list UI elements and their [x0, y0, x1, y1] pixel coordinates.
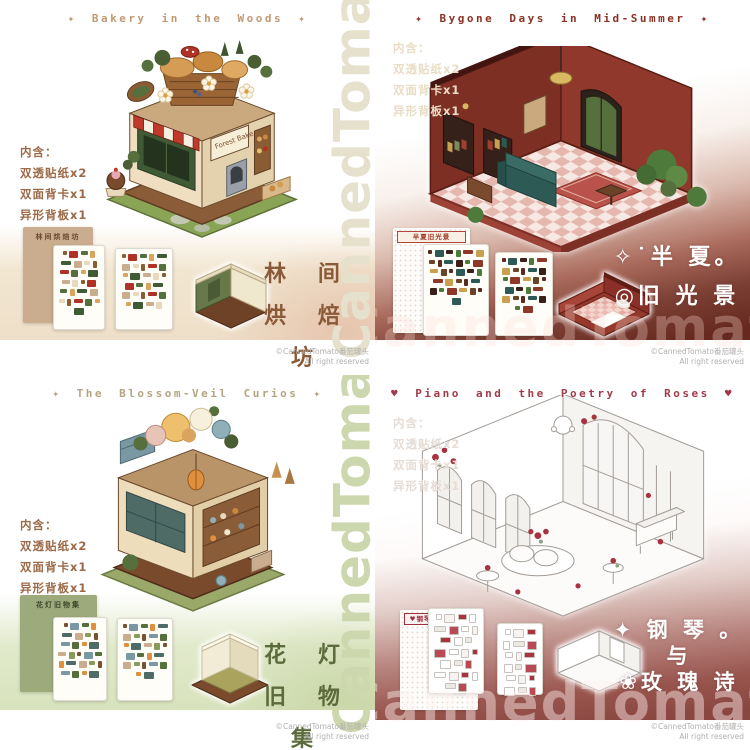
panel-bakery-in-the-woods: CannedTomato ✦ Bakery in the Woods ✦ 内含：… [0, 0, 375, 375]
sticker-item [82, 623, 89, 627]
chinese-title-line: 花 灯 [249, 635, 367, 677]
sticker-item [60, 270, 69, 274]
backing-card-title: 半夏旧光景 [397, 231, 466, 243]
contents-item: 双透贴纸x2 [393, 434, 460, 455]
contents-item: 双面背卡x1 [393, 455, 460, 476]
sticker-item [95, 652, 102, 656]
sticker-item [467, 269, 474, 273]
sticker-item [503, 277, 508, 281]
sticker-item [158, 624, 168, 628]
sticker-item [94, 633, 98, 640]
sticker-item [133, 264, 139, 268]
contents-item: 异形背板x1 [393, 476, 460, 497]
sticker-item [156, 302, 162, 309]
sticker-item [449, 269, 453, 273]
sticker-item [61, 642, 70, 646]
sticker-item [440, 637, 451, 643]
contents-heading: 内含： [393, 38, 460, 59]
sticker-item [122, 254, 126, 258]
sticker-sheet [115, 248, 173, 330]
sticker-item [520, 258, 527, 262]
sticker-item [82, 671, 87, 675]
sticker-item [160, 634, 167, 641]
sticker-item [440, 660, 451, 669]
contents-list: 内含： 双透贴纸x2 双面背卡x1 异形背板x1 [20, 142, 87, 226]
contents-heading: 内含： [20, 515, 87, 536]
sticker-item [125, 283, 134, 290]
sticker-item [74, 308, 84, 315]
sticker-item [122, 292, 130, 299]
sticker-item [150, 624, 155, 631]
sticker-item [430, 288, 437, 295]
poster-grid: CannedTomato ✦ Bakery in the Woods ✦ 内含：… [0, 0, 750, 750]
sticker-item [122, 264, 130, 271]
sticker-item [436, 614, 442, 620]
sticker-item [72, 642, 79, 649]
sticker-item [88, 270, 98, 277]
sticker-item [64, 623, 68, 627]
sticker-item [67, 299, 71, 306]
contents-item: 双透贴纸x2 [20, 163, 87, 184]
sticker-item [123, 634, 131, 641]
sticker-item [456, 260, 463, 267]
sticker-item [529, 258, 534, 265]
contents-item: 异形背板x1 [20, 578, 87, 599]
sticker-item [61, 261, 71, 265]
sticker-item [133, 292, 139, 296]
sticker-item [146, 302, 154, 306]
panel-bygone-days-in-mid-summer: ✦ Bygone Days in Mid-Summer ✦ 内含： 双透贴纸x2… [375, 0, 750, 375]
sticker-item [477, 269, 482, 276]
sticker-item [505, 629, 511, 635]
sticker-item [59, 661, 64, 668]
sticker-item [435, 250, 444, 257]
chinese-title-line: 林 间 [249, 254, 367, 296]
chinese-title-line: ✦ 钢 琴 。 [608, 617, 750, 643]
contents-list: 内含： 双透贴纸x2 双面背卡x1 异形背板x1 [393, 413, 460, 497]
sticker-item [147, 653, 152, 660]
copyright-line: All right reserved [650, 732, 744, 742]
sticker-item [148, 292, 157, 296]
sticker-item [69, 251, 78, 258]
sticker-item [90, 251, 95, 258]
sticker-item [70, 623, 79, 630]
copyright: ©CannedTomato番茄罐头 All right reserved [650, 347, 744, 367]
sticker-item [77, 652, 81, 656]
sticker-item [472, 626, 478, 635]
sticker-item [456, 250, 461, 257]
sticker-item [75, 633, 83, 640]
sticker-item [433, 279, 443, 283]
copyright: ©CannedTomato番茄罐头 All right reserved [650, 722, 744, 742]
sticker-item [513, 629, 524, 638]
sticker-item [154, 643, 160, 650]
sticker-item [461, 649, 469, 658]
sticker-item [143, 273, 151, 277]
sticker-item [505, 287, 514, 294]
sticker-item [465, 637, 472, 643]
copyright: ©CannedTomato番茄罐头 All right reserved [275, 347, 369, 367]
sticker-item [95, 299, 100, 303]
sticker-item [62, 280, 70, 284]
sticker-item [472, 649, 478, 655]
sticker-item [81, 270, 86, 274]
hanging-lamp [550, 72, 572, 84]
sticker-item [148, 264, 157, 268]
sticker-item [136, 283, 143, 287]
sticker-item [137, 653, 144, 657]
sticker-item [141, 624, 148, 628]
sticker-item [159, 292, 166, 299]
contents-list: 内含： 双透贴纸x2 双面背卡x1 异形背板x1 [20, 515, 87, 599]
sticker-item [510, 277, 520, 284]
sticker-item [516, 287, 523, 291]
sticker-item [142, 634, 146, 641]
sticker-item [58, 652, 66, 656]
sticker-item [77, 289, 87, 293]
sticker-item [524, 652, 535, 658]
copyright-line: All right reserved [650, 357, 744, 367]
sticker-item [464, 279, 468, 286]
sticker-item [90, 289, 98, 296]
sticker-item [454, 660, 463, 666]
sticker-item [447, 288, 457, 295]
sticker-item [157, 254, 167, 258]
sticker-item [84, 652, 93, 659]
sticker-item [439, 288, 444, 292]
sticker-item [141, 264, 145, 271]
sticker-sheet [53, 617, 107, 701]
contents-item: 双面背卡x1 [20, 557, 87, 578]
sticker-item [528, 268, 537, 272]
sticker-item [98, 661, 102, 668]
sticker-item [434, 649, 446, 658]
sticker-item [163, 643, 167, 647]
panel-title-english: ✦ Bygone Days in Mid-Summer ✦ [375, 12, 750, 25]
sticker-item [513, 268, 519, 272]
sticker-item [123, 662, 131, 669]
bakery-illustration: Forest Bake [78, 40, 326, 238]
sticker-item [537, 258, 547, 262]
copyright-line: ©CannedTomato番茄罐头 [650, 347, 744, 357]
sticker-item [465, 660, 472, 669]
sticker-item [123, 624, 127, 628]
sticker-item [79, 661, 87, 668]
sticker-item [465, 260, 470, 264]
sticker-item [428, 250, 432, 254]
sticker-item [123, 273, 128, 277]
sticker-item [144, 672, 154, 679]
sticker-item [81, 280, 85, 284]
sticker-item [72, 671, 79, 678]
panel-title-english: ✦ The Blossom-Veil Curios ✦ [0, 387, 375, 400]
sticker-item [533, 277, 539, 284]
sticker-item [72, 280, 78, 287]
contents-heading: 内含： [393, 413, 460, 434]
sticker-item [140, 254, 147, 258]
copyright-line: ©CannedTomato番茄罐头 [650, 722, 744, 732]
sticker-item [134, 662, 140, 666]
sticker-item [516, 652, 522, 661]
panel-title-english: ✦ Bakery in the Woods ✦ [0, 12, 375, 25]
copyright-line: ©CannedTomato番茄罐头 [275, 347, 369, 357]
sticker-item [521, 268, 525, 275]
curios-shop-illustration [70, 401, 322, 613]
sticker-item [134, 634, 140, 638]
sticker-item [438, 260, 442, 267]
sticker-item [429, 260, 435, 264]
sticker-item [502, 258, 506, 262]
sticker-item [454, 637, 463, 646]
sticker-item [70, 289, 75, 296]
copyright-line: ©CannedTomato番茄罐头 [275, 722, 369, 732]
chinese-title-line: ✧˙半 夏。 [606, 238, 748, 277]
contents-item: 双透贴纸x2 [20, 536, 87, 557]
sticker-item [505, 652, 513, 658]
sticker-item [126, 653, 135, 660]
copyright-line: All right reserved [275, 732, 369, 742]
sticker-item [476, 250, 484, 257]
sticker-item [471, 279, 480, 283]
sticker-item [523, 277, 531, 281]
sticker-item [515, 664, 522, 670]
sticker-item [85, 633, 91, 637]
sticker-item [470, 288, 476, 295]
sticker-item [130, 273, 140, 280]
sticker-item [449, 626, 459, 635]
sticker-item [89, 671, 99, 678]
sticker-item [456, 279, 462, 283]
sticker-item [91, 623, 96, 630]
sticker-item [133, 302, 143, 309]
sticker-item [503, 641, 510, 650]
sticker-item [128, 254, 137, 261]
sticker-item [84, 261, 90, 265]
sticker-item [149, 662, 158, 666]
sticker-item [131, 643, 141, 650]
sticker-item [539, 268, 546, 275]
mushroom [181, 46, 199, 57]
sticker-item [160, 662, 167, 669]
sticker-item [144, 643, 152, 647]
sticker-item [444, 260, 453, 264]
sticker-item [66, 661, 76, 665]
sticker-item [159, 264, 166, 271]
sticker-item [60, 289, 67, 293]
sticker-item [533, 287, 543, 291]
sticker-item [61, 671, 70, 675]
sticker-item [141, 292, 145, 299]
sticker-item [542, 277, 546, 281]
contents-item: 双面背卡x1 [20, 184, 87, 205]
sticker-item [124, 643, 129, 647]
sticker-item [89, 642, 99, 649]
contents-list: 内含： 双透贴纸x2 双面背卡x1 异形背板x1 [393, 38, 460, 122]
sticker-item [63, 251, 67, 255]
sticker-item [469, 614, 476, 623]
panel-piano-and-the-poetry-of-roses: ♥ Piano and the Poetry of Roses ♥ 内含： 双透… [375, 375, 750, 750]
panel-the-blossom-veil-curios: CannedTomato ✦ The Blossom-Veil Curios ✦… [0, 375, 375, 750]
sticker-sheet [53, 245, 105, 330]
contents-item: 异形背板x1 [20, 205, 87, 226]
sticker-item [62, 633, 72, 637]
chinese-title-line: 与 [608, 643, 750, 669]
sticker-item [71, 270, 78, 277]
sticker-item [461, 626, 469, 632]
copyright-line: All right reserved [275, 357, 369, 367]
sticker-item [441, 269, 447, 276]
sticker-item [526, 287, 531, 294]
sticker-item [446, 250, 453, 254]
copyright: ©CannedTomato番茄罐头 All right reserved [275, 722, 369, 742]
sticker-sheet [117, 618, 173, 701]
sticker-item [85, 299, 92, 306]
sticker-item [74, 261, 82, 268]
sticker-item [153, 283, 163, 287]
backing-card-title: 林间烘焙坊 [23, 227, 93, 242]
sticker-item [445, 279, 453, 286]
sticker-item [508, 258, 517, 265]
sticker-item [126, 302, 131, 306]
sticker-item [527, 641, 537, 650]
sticker-item [93, 261, 97, 268]
sticker-item [69, 652, 75, 659]
sticker-item [59, 299, 65, 303]
sticker-item [82, 642, 87, 646]
sticker-item [456, 269, 465, 276]
sticker-item [149, 634, 158, 638]
sticker-item [527, 629, 536, 635]
sticker-item [154, 653, 164, 657]
sticker-item [430, 269, 438, 273]
sticker-item [87, 280, 96, 287]
contents-item: 双面背卡x1 [393, 80, 460, 101]
sticker-item [444, 614, 455, 623]
sticker-item [129, 624, 138, 631]
sticker-item [478, 288, 482, 292]
sticker-item [149, 254, 154, 261]
sticker-item [142, 662, 146, 669]
sticker-item [459, 288, 467, 292]
contents-heading: 内含： [20, 142, 87, 163]
sticker-item [449, 649, 459, 655]
sticker-item [473, 260, 483, 267]
panel-title-english: ♥ Piano and the Poetry of Roses ♥ [375, 387, 750, 400]
sticker-item [81, 251, 88, 255]
sticker-item [153, 273, 159, 280]
sticker-item [162, 273, 166, 277]
sticker-item [89, 661, 95, 665]
sticker-item [502, 268, 510, 275]
sticker-item [136, 672, 141, 676]
sticker-item [513, 641, 525, 647]
contents-item: 异形背板x1 [393, 101, 460, 122]
sticker-item [434, 626, 446, 632]
sticker-item [458, 614, 467, 620]
sticker-item [146, 283, 151, 290]
chandelier [554, 416, 572, 434]
sticker-item [74, 299, 83, 303]
contents-item: 双透贴纸x2 [393, 59, 460, 80]
sticker-item [463, 250, 473, 254]
